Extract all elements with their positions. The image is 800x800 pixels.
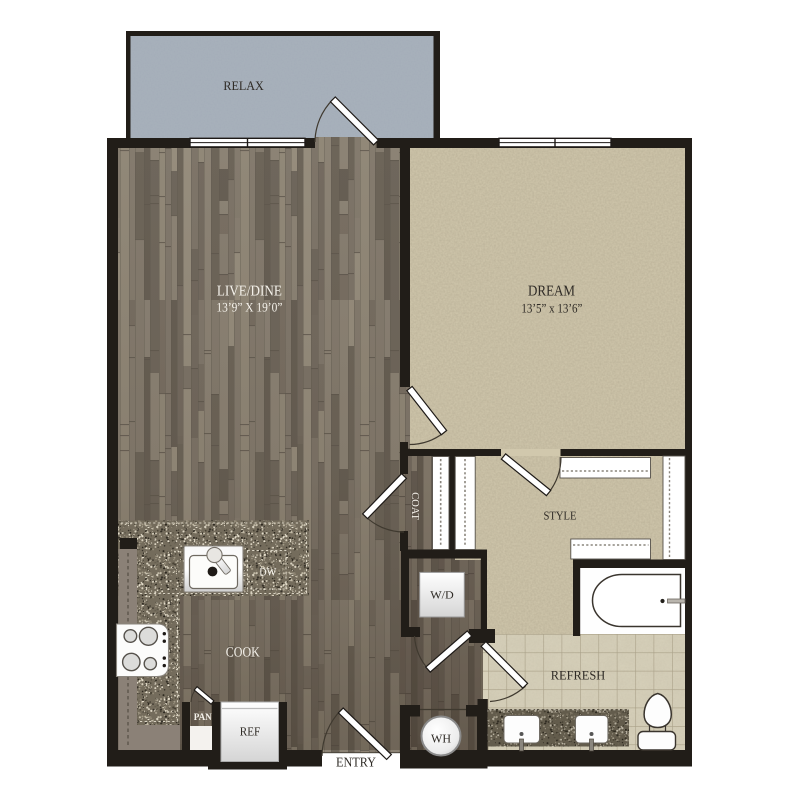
svg-text:13’9” X 19’0”: 13’9” X 19’0” xyxy=(216,300,282,315)
svg-text:REFRESH: REFRESH xyxy=(551,668,606,683)
svg-text:DREAM: DREAM xyxy=(528,284,575,300)
svg-text:RELAX: RELAX xyxy=(223,78,264,93)
svg-text:DW: DW xyxy=(259,567,277,579)
svg-text:LIVE/DINE: LIVE/DINE xyxy=(217,284,282,300)
svg-text:WH: WH xyxy=(431,731,451,745)
svg-text:STYLE: STYLE xyxy=(544,509,577,523)
svg-text:13’5” x 13’6”: 13’5” x 13’6” xyxy=(521,301,582,316)
svg-text:REF: REF xyxy=(240,725,261,739)
svg-text:COOK: COOK xyxy=(226,646,260,661)
svg-text:PAN: PAN xyxy=(194,712,213,723)
svg-text:COAT: COAT xyxy=(409,492,420,520)
svg-text:W/D: W/D xyxy=(430,590,454,602)
svg-text:ENTRY: ENTRY xyxy=(336,755,376,770)
